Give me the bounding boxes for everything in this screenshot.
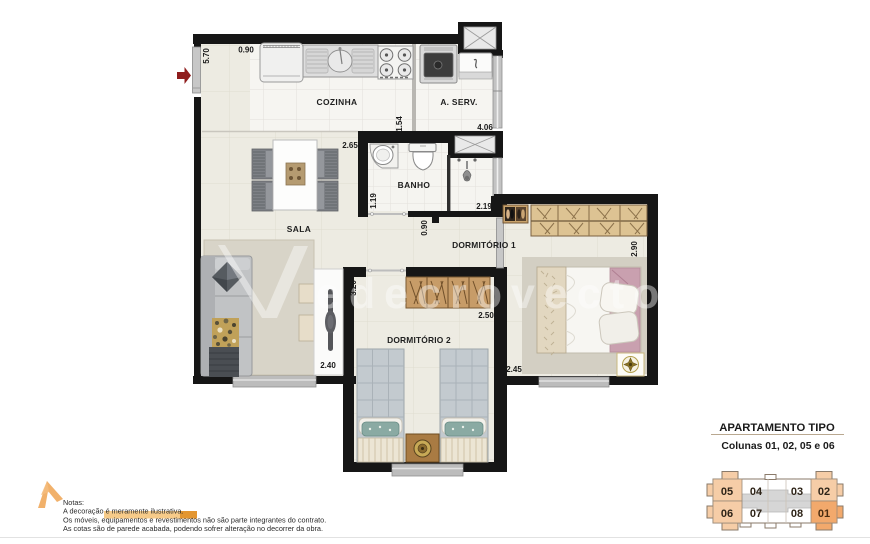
svg-text:As cotas são de parede acabada: As cotas são de parede acabada, podendo … (63, 524, 323, 533)
svg-text:DORMITÓRIO 2: DORMITÓRIO 2 (387, 334, 451, 345)
svg-text:2.90: 2.90 (630, 241, 639, 257)
svg-text:1.19: 1.19 (369, 193, 378, 209)
svg-text:A decoração é meramente ilustr: A decoração é meramente ilustrativa. (63, 507, 183, 516)
svg-text:1.54: 1.54 (395, 116, 404, 132)
svg-text:08: 08 (791, 508, 803, 520)
svg-text:05: 05 (721, 486, 733, 498)
svg-text:03: 03 (791, 486, 803, 498)
svg-text:06: 06 (721, 508, 733, 520)
svg-text:4.06: 4.06 (477, 123, 493, 132)
svg-text:COZINHA: COZINHA (317, 97, 358, 107)
svg-text:02: 02 (818, 486, 830, 498)
svg-text:2.50: 2.50 (478, 311, 494, 320)
svg-text:A. SERV.: A. SERV. (440, 97, 477, 107)
svg-text:BANHO: BANHO (398, 180, 431, 190)
svg-text:0.90: 0.90 (420, 220, 429, 236)
svg-text:Colunas 01, 02, 05 e 06: Colunas 01, 02, 05 e 06 (721, 441, 834, 452)
svg-text:2.40: 2.40 (320, 361, 336, 370)
svg-text:DORMITÓRIO 1: DORMITÓRIO 1 (452, 239, 516, 250)
svg-text:2.45: 2.45 (506, 365, 522, 374)
svg-text:2.19: 2.19 (476, 202, 492, 211)
svg-text:SALA: SALA (287, 224, 311, 234)
svg-text:01: 01 (818, 508, 830, 520)
svg-text:5.70: 5.70 (202, 48, 211, 64)
svg-text:04: 04 (750, 486, 763, 498)
svg-text:07: 07 (750, 508, 762, 520)
svg-text:0.90: 0.90 (238, 46, 254, 55)
svg-text:2.65: 2.65 (342, 141, 358, 150)
svg-text:3.20: 3.20 (349, 280, 358, 296)
svg-text:APARTAMENTO TIPO: APARTAMENTO TIPO (719, 422, 835, 434)
